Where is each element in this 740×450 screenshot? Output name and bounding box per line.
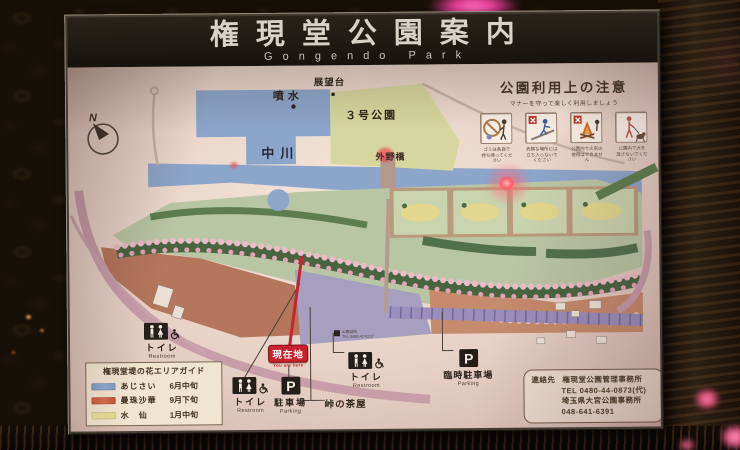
compass-north-arrow: N bbox=[88, 112, 118, 154]
legend-swatch-hydrangea bbox=[91, 383, 115, 390]
distant-light bbox=[40, 329, 44, 332]
notice-caption: 公園内で火気の使用はできません bbox=[570, 146, 604, 163]
contact-info-box: 連絡先 権現堂公園管理事務所 TEL 0480-44-0873(代) 埼玉県大宮… bbox=[523, 368, 661, 423]
facility-restroom-1: トイレ Restroom bbox=[130, 322, 194, 360]
restroom-label-en: Restroom bbox=[130, 353, 194, 360]
contact-office1: 権現堂公園管理事務所 bbox=[562, 375, 642, 386]
legend-item-spider-lily: 曼珠沙華 9月下旬 bbox=[92, 394, 217, 406]
restroom-icon bbox=[232, 377, 256, 394]
map-label-observatory: 展望台 bbox=[314, 74, 346, 88]
legend-item-narcissus: 水 仙 1月中旬 bbox=[92, 409, 217, 421]
parking-icon: P bbox=[281, 377, 300, 395]
legend-swatch-spider-lily bbox=[92, 397, 116, 404]
map-label-nakagawa-river: 中川 bbox=[261, 143, 299, 162]
no-littering-icon bbox=[480, 113, 512, 144]
night-photo-of-park-sign: 権現堂公園案内 Gongendo Park bbox=[0, 0, 740, 450]
parking-icon: P bbox=[459, 349, 478, 367]
legend-title: 権現堂堤の花エリアガイド bbox=[91, 365, 216, 377]
pink-bokeh-light bbox=[694, 388, 720, 410]
map-label-park-no3: ３号公園 bbox=[345, 107, 397, 123]
map-label-bridge: 外野橋 bbox=[375, 150, 405, 163]
map-label-fountain: 噴水 bbox=[265, 87, 311, 103]
notice-title: 公園利用上の注意 bbox=[472, 75, 656, 97]
you-are-here-marker: 現在地 You are here bbox=[262, 344, 314, 367]
compass-n-label: N bbox=[89, 112, 98, 124]
notice-card-no-littering: ゴミは各自で持ち帰ってください bbox=[480, 113, 514, 164]
notice-caption: 公園内で犬を放さないでください bbox=[615, 146, 649, 163]
wheelchair-icon bbox=[170, 329, 180, 340]
notice-card-no-entry-danger: 危険な場所には立ち入らないでください bbox=[525, 112, 559, 163]
no-entry-danger-icon bbox=[525, 112, 557, 143]
dog-on-leash-icon bbox=[615, 112, 647, 143]
restroom-icon bbox=[144, 323, 168, 340]
map-label-teahouse: 峠の茶屋 bbox=[325, 396, 367, 410]
notice-caption: ゴミは各自で持ち帰ってください bbox=[480, 147, 514, 164]
park-rules-notice: 公園利用上の注意 マナーを守って楽しく利用しましょう ゴミ bbox=[472, 75, 657, 163]
temporary-parking-label-jp: 臨時駐車場 bbox=[430, 368, 506, 382]
office-note-line2: TEL.0480-42-0237 bbox=[342, 334, 374, 339]
flower-area-legend: 権現堂堤の花エリアガイド あじさい 6月中旬 曼珠沙華 9月下旬 水 仙 1月中… bbox=[85, 361, 223, 426]
tree-trunk-right bbox=[658, 0, 740, 450]
you-are-here-english: You are here bbox=[262, 362, 314, 367]
distant-light bbox=[12, 351, 15, 354]
notice-caption: 危険な場所には立ち入らないでください bbox=[525, 146, 559, 163]
park-map-board: N 噴水 展望台 ３号公園 中川 外野橋 峠の茶屋 公園詰所 TEL.0480-… bbox=[68, 62, 661, 431]
map-office-note: 公園詰所 TEL.0480-42-0237 bbox=[334, 330, 375, 339]
pink-bokeh-light bbox=[678, 438, 696, 450]
facility-parking: P 駐車場 Parking bbox=[266, 376, 314, 414]
notice-card-dog-on-leash: 公園内で犬を放さないでください bbox=[615, 112, 649, 163]
parking-label-jp: 駐車場 bbox=[267, 395, 315, 408]
facility-temporary-parking: P 臨時駐車場 Parking bbox=[430, 349, 506, 388]
parking-label-en: Parking bbox=[267, 408, 315, 414]
contact-tel2: 048-641-6391 bbox=[562, 406, 656, 417]
contact-label: 連絡先 bbox=[531, 375, 555, 386]
parking-p-symbol: P bbox=[286, 378, 295, 394]
office-marker bbox=[334, 330, 340, 336]
distant-light bbox=[26, 315, 31, 319]
notice-subtitle: マナーを守って楽しく利用しましょう bbox=[472, 97, 656, 108]
park-information-sign: 権現堂公園案内 Gongendo Park bbox=[64, 9, 664, 434]
notice-card-no-fire: 公園内で火気の使用はできません bbox=[570, 112, 604, 163]
restroom-label-jp: トイレ bbox=[130, 340, 194, 354]
restroom-label-en: Restroom bbox=[334, 383, 398, 390]
sign-title-band: 権現堂公園案内 Gongendo Park bbox=[67, 12, 657, 67]
restroom-icon bbox=[348, 352, 372, 369]
you-are-here-badge: 現在地 bbox=[268, 344, 308, 362]
parking-p-symbol: P bbox=[463, 351, 472, 367]
temporary-parking-label-en: Parking bbox=[430, 381, 506, 388]
wheelchair-icon bbox=[374, 358, 384, 369]
sign-subtitle-romaji: Gongendo Park bbox=[254, 49, 471, 63]
legend-item-hydrangea: あじさい 6月中旬 bbox=[91, 380, 216, 392]
legend-swatch-narcissus bbox=[92, 412, 116, 419]
sign-title: 権現堂公園案内 bbox=[193, 17, 532, 50]
contact-office2: 埼玉県大宮公園事務所 bbox=[562, 395, 656, 406]
restroom-label-jp: トイレ bbox=[334, 370, 398, 384]
facility-restroom-3: トイレ Restroom bbox=[334, 352, 398, 390]
no-fire-icon bbox=[570, 112, 602, 143]
